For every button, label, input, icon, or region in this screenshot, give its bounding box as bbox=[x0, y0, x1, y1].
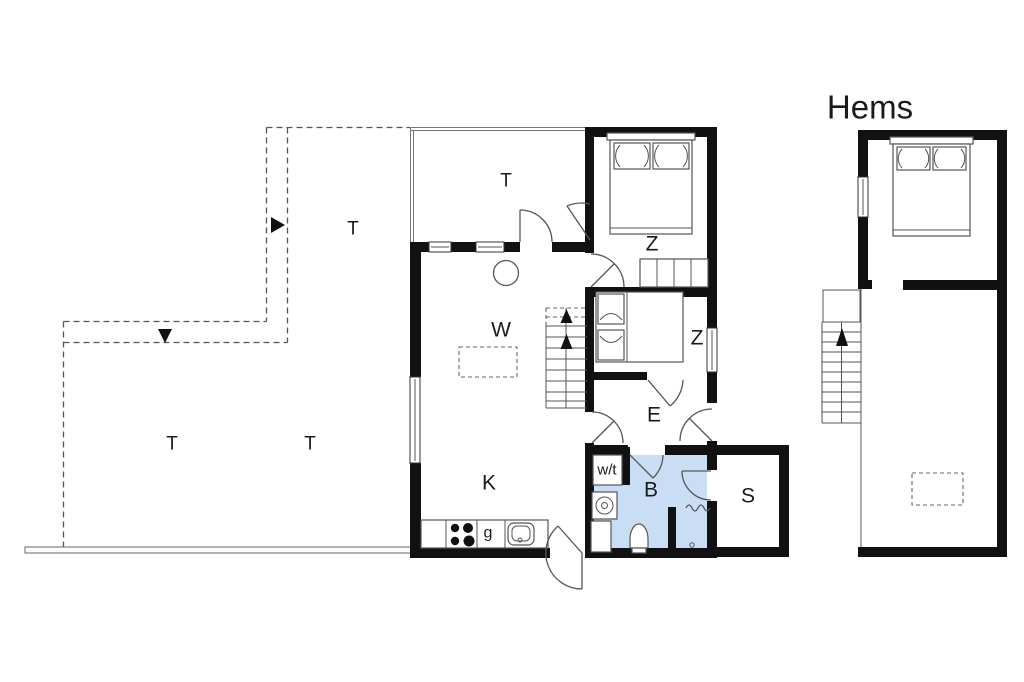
table-dashed-icon bbox=[459, 347, 517, 377]
wall-bath-top-left bbox=[585, 445, 628, 455]
label-cooker: g bbox=[484, 525, 493, 542]
wall-shower-stub bbox=[668, 507, 676, 553]
wall-spine-mid bbox=[585, 287, 594, 412]
label-terrace-upper-left: T bbox=[347, 219, 359, 240]
loft-wall-bottom bbox=[858, 547, 1007, 557]
toilet-icon bbox=[630, 524, 648, 553]
wall-terrace-d bbox=[552, 242, 594, 252]
stove-burner-icon bbox=[451, 524, 459, 532]
wall-bath-storage-a bbox=[707, 455, 717, 470]
terrace-dashed-boundary bbox=[64, 128, 411, 548]
main-staircase bbox=[546, 308, 587, 408]
closet-icon bbox=[640, 259, 708, 287]
floor-plan-page: T T T T Z Z W E K B S w/t g Hems bbox=[0, 0, 1024, 682]
covered-terrace-outline bbox=[411, 128, 586, 244]
loft-void-dashed bbox=[912, 473, 963, 505]
stove-burner-icon bbox=[463, 523, 473, 533]
wall-terrace-b bbox=[451, 242, 476, 252]
patio-door-left bbox=[520, 210, 552, 242]
label-bedroom-main: Z bbox=[646, 233, 659, 256]
loft-stair-landing bbox=[823, 290, 860, 322]
step-arrow-right-icon bbox=[271, 217, 285, 233]
wall-entry-top bbox=[585, 372, 647, 380]
entry-exterior-door bbox=[680, 409, 712, 441]
stairs-up-arrow-icon bbox=[561, 334, 573, 349]
label-kitchen: K bbox=[482, 472, 496, 495]
kitchen-exterior-door bbox=[546, 526, 582, 589]
loft-staircase bbox=[822, 290, 861, 423]
stairs-up-arrow-icon bbox=[561, 309, 573, 323]
loft-window bbox=[858, 177, 868, 217]
wall-kitchen-bottom bbox=[410, 548, 550, 558]
loft-wall-stub bbox=[858, 280, 872, 289]
wall-left-lower bbox=[410, 463, 421, 558]
label-living-room: W bbox=[491, 319, 511, 342]
room-labels: T T T T Z Z W E K B S w/t g Hems bbox=[166, 89, 913, 542]
step-arrow-down-icon bbox=[158, 329, 172, 343]
washing-machine-icon bbox=[592, 492, 617, 519]
loft-wall-left-a bbox=[858, 130, 868, 177]
floor-plan-canvas: T T T T Z Z W E K B S w/t g Hems bbox=[0, 0, 1024, 682]
wall-bath-storage-b bbox=[707, 501, 717, 548]
wall-bath-storage-top bbox=[665, 445, 789, 455]
label-bathroom: B bbox=[644, 479, 658, 502]
double-bed-icon bbox=[607, 133, 695, 234]
stove-burner-icon bbox=[451, 537, 459, 545]
stove-burner-icon bbox=[464, 536, 475, 547]
wall-terrace-a bbox=[410, 242, 429, 252]
label-utility: w/t bbox=[596, 462, 617, 479]
bedroom2-door bbox=[648, 380, 683, 406]
label-storage: S bbox=[741, 485, 755, 508]
wall-right-upper bbox=[707, 127, 717, 328]
shower-tray bbox=[591, 521, 611, 552]
wall-terrace-c bbox=[504, 242, 520, 252]
label-bedroom-second: Z bbox=[691, 327, 704, 350]
label-terrace-lower-left: T bbox=[166, 434, 178, 455]
label-entry: E bbox=[647, 404, 661, 427]
deck-edge-strip bbox=[25, 547, 413, 553]
label-terrace-lower-mid: T bbox=[304, 434, 316, 455]
stairs-up-arrow-icon bbox=[836, 328, 848, 346]
bedroom1-door bbox=[591, 254, 624, 287]
wall-left-upper bbox=[410, 243, 421, 377]
wall-utility bbox=[622, 447, 630, 485]
loft-wall-divider bbox=[903, 280, 999, 290]
label-terrace-top: T bbox=[500, 171, 512, 192]
wood-stove-icon bbox=[494, 261, 519, 286]
wall-storage-bottom bbox=[707, 547, 789, 557]
living-entry-door bbox=[592, 412, 623, 443]
loft-wall-left-b bbox=[858, 217, 868, 289]
wall-right-mid bbox=[707, 372, 717, 403]
loft-title: Hems bbox=[827, 89, 913, 126]
loft-wall-right bbox=[997, 130, 1007, 557]
wall-storage-right bbox=[779, 445, 789, 557]
single-bed-icon bbox=[596, 292, 683, 362]
loft-double-bed-icon bbox=[890, 137, 973, 236]
